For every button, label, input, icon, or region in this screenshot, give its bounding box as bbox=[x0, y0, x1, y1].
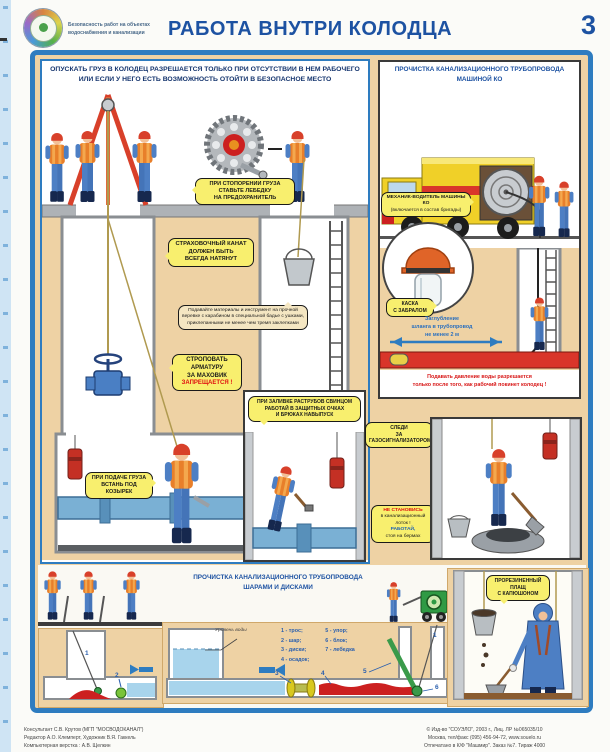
legend-item: 4 - осадок; bbox=[281, 656, 309, 666]
hose-nozzle-icon bbox=[390, 354, 408, 365]
manhole-cross-section-left: 2 1 bbox=[38, 628, 164, 708]
callout-materials: Подавайте материалы и инструмент на проч… bbox=[178, 305, 308, 330]
callout-lead-pouring: ПРИ ЗАЛИВКЕ РАСТРУБОВ СВИНЦОМ РАБОТАЙ В … bbox=[248, 396, 361, 422]
block-pulley-icon bbox=[412, 686, 422, 696]
worker-figure bbox=[133, 131, 157, 202]
hose-depth-note: Заглубление шланга в трубопровод не мене… bbox=[398, 316, 486, 339]
legend-item: 3 - диски; bbox=[281, 646, 309, 656]
organization-logo-icon bbox=[24, 9, 62, 47]
worker-caulking bbox=[263, 464, 298, 532]
legend-item: 2 - шар; bbox=[281, 637, 309, 647]
label-1: 1 bbox=[85, 650, 89, 657]
credit-line: Москва, тел/факс (095) 456-94-72, www.so… bbox=[377, 734, 592, 742]
binding-strip bbox=[0, 0, 11, 752]
top-warning-text: ОПУСКАТЬ ГРУЗ В КОЛОДЕЦ РАЗРЕШАЕТСЯ ТОЛЬ… bbox=[42, 65, 368, 84]
credit-line: © Изд-во "СОУЭЛО", 2003 г., Лиц. ЛР №065… bbox=[377, 726, 592, 734]
pressure-warning: Подавать давление воды разрешается тольк… bbox=[380, 373, 579, 389]
ko-panel-title: ПРОЧИСТКА КАНАЛИЗАЦИОННОГО ТРУБОПРОВОДА … bbox=[380, 65, 579, 84]
worker-figure bbox=[44, 571, 60, 619]
bucket-icon bbox=[472, 610, 496, 636]
legend-item: 5 - упор; bbox=[325, 627, 355, 637]
worker-figure bbox=[76, 131, 100, 202]
callout-helmet: КАСКА С ЗАБРАЛОМ bbox=[386, 298, 434, 317]
credits-left: Консультант С.В. Крутов (МГП "МОСВОДОКАН… bbox=[24, 726, 143, 750]
pipeline-cross-section: 3 4 5 6 1 Уровень воды 1 - трос; bbox=[162, 622, 452, 704]
water-level-label: Уровень воды bbox=[215, 628, 247, 633]
callout-mechanic-driver: МЕХАНИК-ВОДИТЕЛЬ МАШИНЫ КО (включается в… bbox=[381, 192, 471, 217]
water bbox=[169, 681, 285, 695]
bottom-section-title: ПРОЧИСТКА КАНАЛИЗАЦИОННОГО ТРУБОПРОВОДА … bbox=[138, 573, 418, 592]
ratchet-wheel-detail bbox=[207, 118, 282, 179]
worker-figure bbox=[80, 571, 96, 619]
legend-column-2: 5 - упор; 6 - блок; 7 - лебедка bbox=[325, 627, 355, 666]
label-4: 4 bbox=[321, 670, 325, 677]
diagram-legend: 1 - трос; 2 - шар; 3 - диски; 4 - осадок… bbox=[281, 627, 355, 666]
callout-winch-safety: ПРИ СТОПОРЕНИИ ГРУЗА СТАВЬТЕ ЛЕБЕДКУ НА … bbox=[195, 178, 295, 205]
well-work-panel: ОПУСКАТЬ ГРУЗ В КОЛОДЕЦ РАЗРЕШАЕТСЯ ТОЛЬ… bbox=[40, 59, 370, 564]
pipeline bbox=[58, 493, 244, 523]
credits-right: © Изд-во "СОУЭЛО", 2003 г., Лиц. ЛР №065… bbox=[377, 726, 592, 750]
callout-gas-alarm: СЛЕДИ ЗА ГАЗОСИГНАЛИЗАТОРОМ bbox=[365, 422, 433, 448]
credit-line: Компьютерная верстка : А.В. Щелкин bbox=[24, 742, 143, 750]
cross-section-left-scene: 2 1 bbox=[39, 629, 161, 705]
lead-pouring-panel: ПРИ ЗАЛИВКЕ РАСТРУБОВ СВИНЦОМ РАБОТАЙ В … bbox=[243, 390, 366, 562]
worker-shoveling bbox=[486, 449, 512, 526]
legend-item: 6 - блок; bbox=[325, 637, 355, 647]
safety-poster: Безопасность работ на объектах водоснабж… bbox=[0, 0, 610, 752]
registration-mark bbox=[0, 38, 7, 41]
caulking-scene bbox=[245, 432, 364, 560]
callout-sling-prohibition: СТРОПОВАТЬ АРМАТУРУ ЗА МАХОВИК ЗАПРЕЩАЕТ… bbox=[172, 354, 242, 391]
label-2: 2 bbox=[115, 672, 119, 679]
label-1: 1 bbox=[433, 632, 437, 639]
callout-raincoat: ПРОРЕЗИНЕННЫЙ ПЛАЩ С КАПЮШОНОМ bbox=[486, 575, 550, 601]
worker-figure bbox=[555, 182, 574, 237]
credit-line: Редактор А.О. Клемперт, Художник В.Я. Га… bbox=[24, 734, 143, 742]
cleaning-ball-icon bbox=[116, 688, 126, 698]
credit-line: Консультант С.В. Крутов (МГП "МОСВОДОКАН… bbox=[24, 726, 143, 734]
shoveling-scene bbox=[432, 419, 580, 558]
warning-line1: ОПУСКАТЬ ГРУЗ В КОЛОДЕЦ РАЗРЕШАЕТСЯ ТОЛЬ… bbox=[42, 65, 368, 75]
ko-machine-panel: ПРОЧИСТКА КАНАЛИЗАЦИОННОГО ТРУБОПРОВОДА … bbox=[378, 60, 581, 399]
balls-disks-section: ПРОЧИСТКА КАНАЛИЗАЦИОННОГО ТРУБОПРОВОДА … bbox=[38, 565, 586, 708]
legend-item: 7 - лебедка bbox=[325, 646, 355, 656]
shoveling-panel bbox=[430, 417, 582, 560]
legend-column-1: 1 - трос; 2 - шар; 3 - диски; 4 - осадок… bbox=[281, 627, 309, 666]
bell-joint bbox=[297, 524, 311, 552]
bucket-icon bbox=[448, 516, 470, 537]
raincoat-panel: ПРОРЕЗИНЕННЫЙ ПЛАЩ С КАПЮШОНОМ bbox=[447, 568, 589, 707]
warning-line2: ИЛИ ЕСЛИ У НЕГО ЕСТЬ ВОЗМОЖНОСТЬ ОТОЙТИ … bbox=[42, 75, 368, 85]
sewer-pipe bbox=[380, 352, 579, 368]
poster-frame: ОПУСКАТЬ ГРУЗ В КОЛОДЕЦ РАЗРЕШАЕТСЯ ТОЛЬ… bbox=[30, 50, 593, 713]
callout-safety-rope: СТРАХОВОЧНЫЙ КАНАТ ДОЛЖЕН БЫТЬ ВСЕГДА НА… bbox=[168, 238, 254, 267]
gas-detector-icon bbox=[330, 458, 344, 488]
label-6: 6 bbox=[435, 684, 439, 691]
water bbox=[127, 683, 155, 697]
worker-figure bbox=[387, 582, 400, 622]
worker-figure bbox=[45, 133, 68, 202]
page-number: 3 bbox=[581, 10, 596, 41]
dirt-floor bbox=[464, 693, 572, 699]
label-5: 5 bbox=[363, 668, 367, 675]
legend-item: 1 - трос; bbox=[281, 627, 309, 637]
callout-load-feed: ПРИ ПОДАЧЕ ГРУЗА ВСТАНЬ ПОД КОЗЫРЕК bbox=[85, 472, 153, 499]
callout-no-standing-in-tray: НЕ СТАНОВИСЬ в канализационный лоток ! Р… bbox=[371, 505, 435, 543]
winch-machine-icon bbox=[421, 591, 447, 622]
pulley-icon bbox=[102, 99, 114, 111]
label-3: 3 bbox=[275, 670, 279, 677]
credit-line: Отпечатано в К/Ф "Машмир". Заказ №7. Тир… bbox=[377, 742, 592, 750]
gas-detector-icon bbox=[543, 433, 557, 459]
page-title: РАБОТА ВНУТРИ КОЛОДЦА bbox=[120, 18, 500, 41]
flow-arrow-icon bbox=[130, 665, 153, 675]
